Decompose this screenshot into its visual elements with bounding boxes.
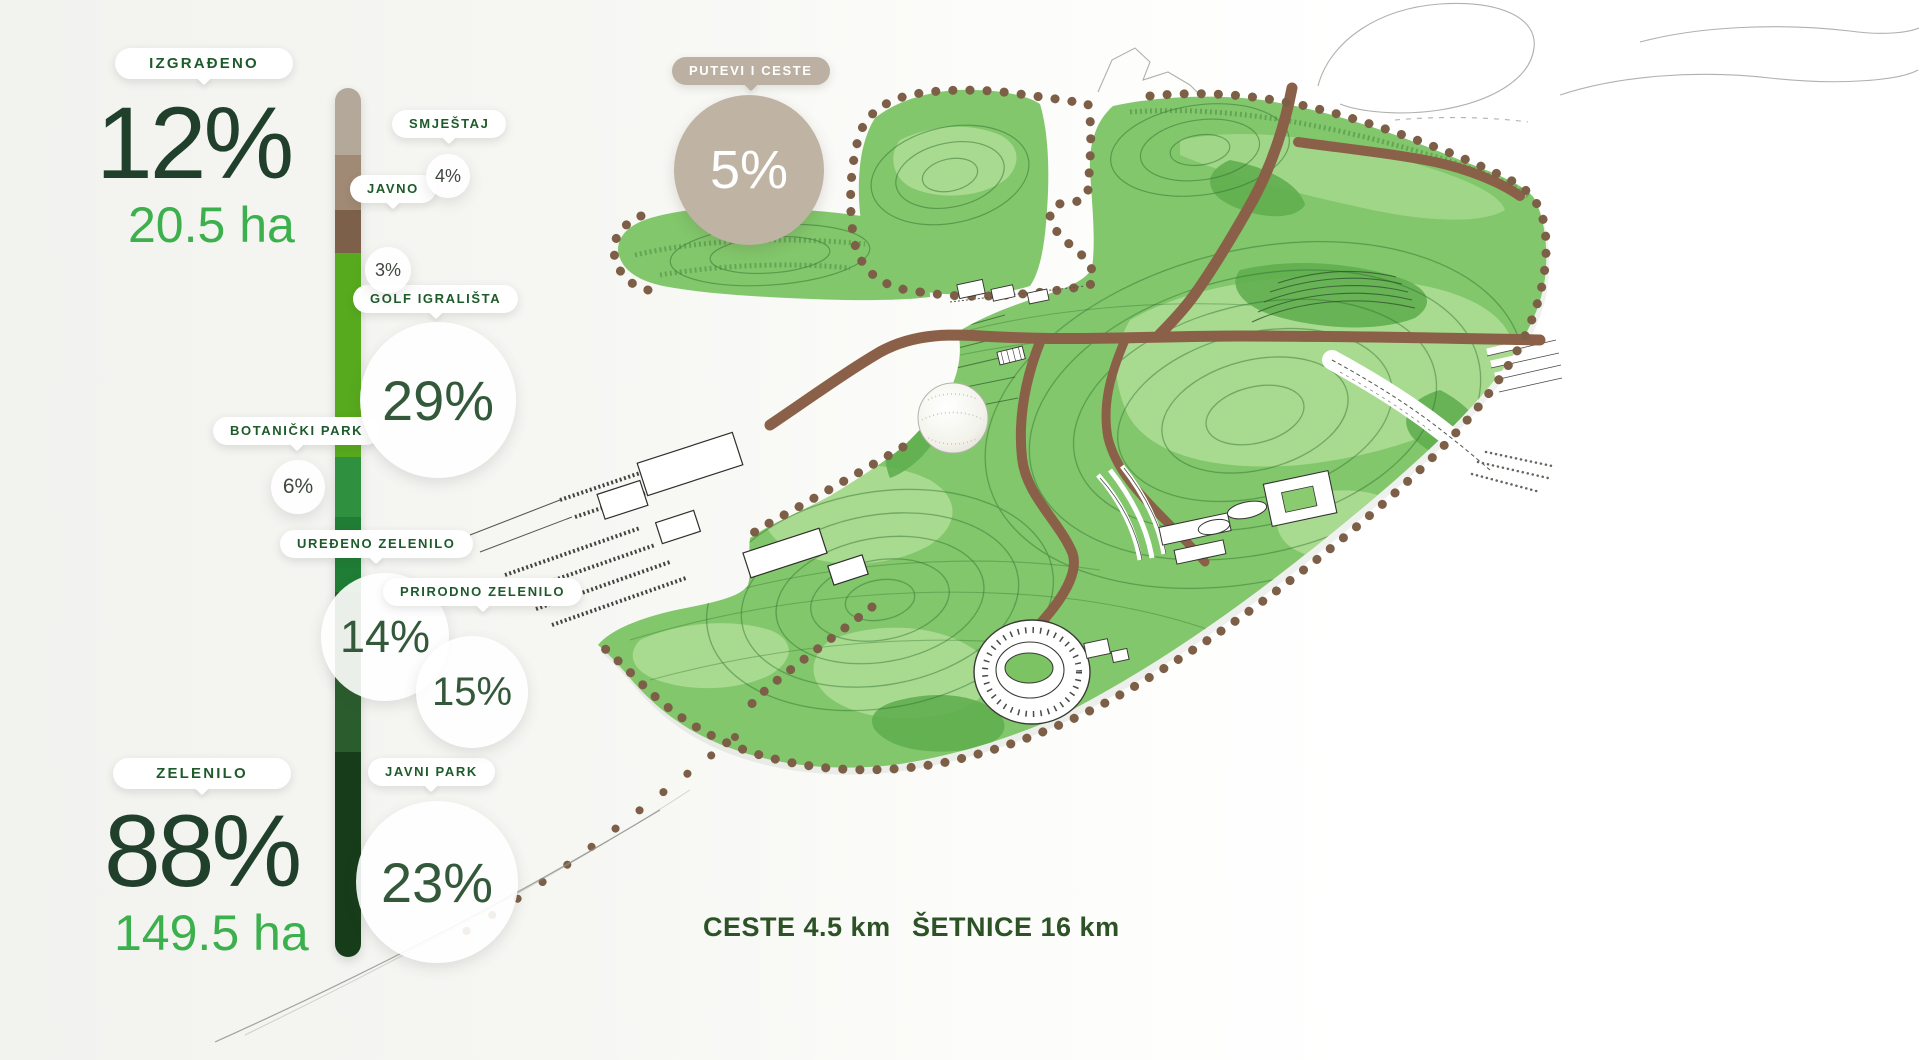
- label-zelenilo: ZELENILO: [113, 758, 291, 789]
- built-percent: 12%: [96, 92, 291, 194]
- bar-segment-javni-park: [335, 752, 361, 957]
- bar-segment-putevi-i-ceste: [335, 88, 361, 155]
- stat-setnice-km: ŠETNICE 16 km: [912, 912, 1120, 943]
- bubble-smjestaj-percent: 4%: [426, 154, 470, 198]
- label-smjestaj: SMJEŠTAJ: [392, 110, 506, 138]
- label-uredeno-zelenilo: UREĐENO ZELENILO: [280, 530, 473, 558]
- stat-ceste-km: CESTE 4.5 km: [703, 912, 891, 943]
- green-percent: 88%: [104, 800, 299, 902]
- bubble-javno-percent: 3%: [365, 247, 411, 293]
- bubble-golf-percent: 29%: [360, 322, 516, 478]
- built-area: 20.5 ha: [128, 200, 295, 250]
- label-javni-park: JAVNI PARK: [368, 758, 495, 786]
- label-putevi-i-ceste: PUTEVI I CESTE: [672, 57, 830, 85]
- landuse-stacked-bar: [335, 88, 361, 957]
- bar-segment-javno: [335, 210, 361, 253]
- label-javno: JAVNO: [350, 175, 436, 203]
- bubble-prirodno-percent: 15%: [416, 636, 528, 748]
- label-botanicki-park: BOTANIČKI PARK: [213, 417, 380, 445]
- bar-segment-botanicki-park: [335, 457, 361, 517]
- dome-sketch: [918, 383, 988, 453]
- green-area: 149.5 ha: [114, 908, 309, 958]
- bubble-javni-park-percent: 23%: [356, 801, 518, 963]
- label-izgradeno: IZGRAĐENO: [115, 48, 293, 79]
- bubble-botanicki-percent: 6%: [271, 460, 325, 514]
- bubble-putevi-percent: 5%: [674, 95, 824, 245]
- label-prirodno-zelenilo: PRIRODNO ZELENILO: [383, 578, 582, 606]
